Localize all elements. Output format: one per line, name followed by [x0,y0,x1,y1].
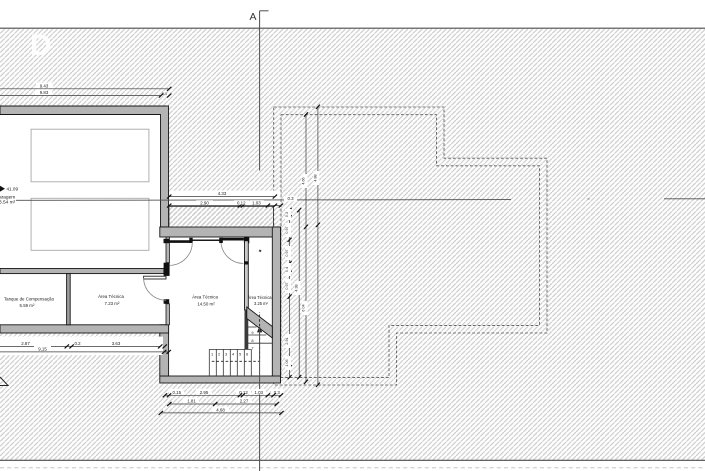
svg-text:1.06: 1.06 [285,359,289,366]
svg-text:1.03: 1.03 [252,200,261,205]
svg-text:0.15: 0.15 [173,390,182,395]
svg-text:6: 6 [246,352,248,357]
svg-text:4.68: 4.68 [216,408,225,413]
svg-text:9.43: 9.43 [40,83,49,88]
svg-text:14.50 m²: 14.50 m² [197,302,215,307]
svg-text:4.33: 4.33 [218,191,227,196]
svg-text:4.66: 4.66 [301,177,305,184]
svg-text:8: 8 [251,338,253,343]
svg-text:0.2: 0.2 [74,341,81,346]
svg-text:4.88: 4.88 [313,174,317,181]
svg-text:A: A [250,11,257,23]
svg-text:2: 2 [218,352,220,357]
svg-text:9,15: 9,15 [38,347,47,352]
svg-text:7.23 m²: 7.23 m² [105,301,120,306]
svg-text:4.38: 4.38 [295,284,299,291]
svg-text:5: 5 [239,352,241,357]
svg-text:0.1: 0.1 [162,92,167,96]
svg-text:Área Técnica: Área Técnica [192,295,218,300]
svg-text:Tanque de Compensação: Tanque de Compensação [4,297,55,302]
svg-text:1: 1 [211,352,213,357]
svg-text:2.95: 2.95 [200,390,209,395]
svg-text:0.4: 0.4 [285,267,289,272]
svg-text:2.91: 2.91 [285,337,289,344]
svg-text:2.27: 2.27 [240,399,249,404]
svg-text:0.97: 0.97 [285,249,289,256]
svg-text:0.97: 0.97 [285,226,289,233]
svg-text:3.54 m²: 3.54 m² [0,200,16,206]
svg-text:9.83: 9.83 [40,90,49,95]
svg-text:2.87: 2.87 [21,341,30,346]
svg-text:0.3: 0.3 [287,196,294,201]
svg-text:5.59 m²: 5.59 m² [20,303,35,308]
svg-text:0.97: 0.97 [285,282,289,289]
svg-text:1.81: 1.81 [187,399,196,404]
svg-text:6.04: 6.04 [301,304,305,311]
svg-text:3.25 m²: 3.25 m² [254,301,269,306]
svg-text:1.03: 1.03 [254,390,263,395]
svg-text:7: 7 [251,345,253,350]
svg-text:0.12: 0.12 [237,200,246,205]
svg-text:0.12: 0.12 [239,390,248,395]
svg-text:0.3: 0.3 [274,390,281,395]
svg-text:2.90: 2.90 [200,200,209,205]
svg-text:3: 3 [225,352,227,357]
svg-text:Área Técnica: Área Técnica [98,294,124,299]
svg-text:0.3: 0.3 [285,212,289,217]
svg-text:D: D [30,29,52,62]
svg-text:41.09: 41.09 [7,187,19,192]
svg-text:9: 9 [251,330,253,335]
svg-text:3.63: 3.63 [112,341,121,346]
svg-text:Área Técnica: Área Técnica [247,295,272,300]
